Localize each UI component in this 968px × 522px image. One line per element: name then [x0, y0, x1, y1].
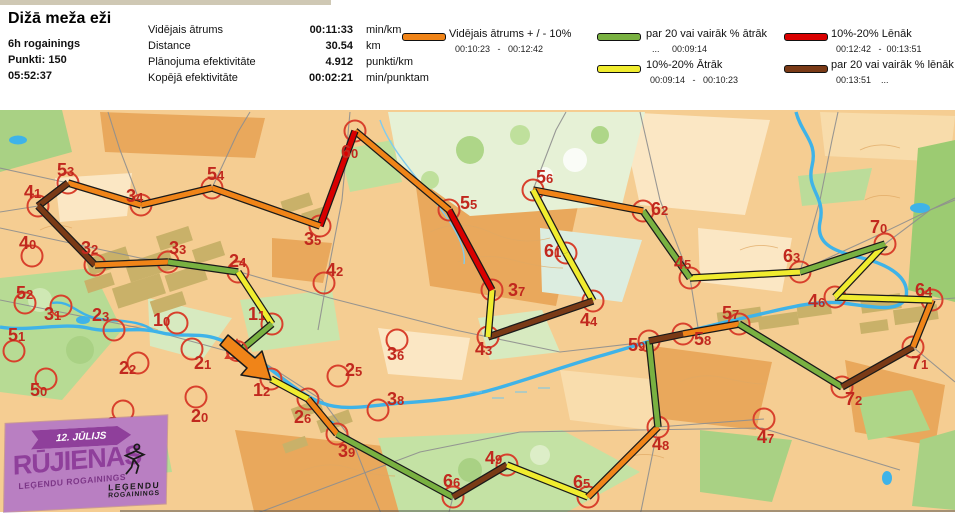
control-number-53: 53: [57, 164, 74, 178]
stat-unit: min/punktam: [366, 72, 429, 84]
legend-label: 10%-20% Ātrāk: [646, 59, 722, 71]
legend-range: 00:09:14 - 00:10:23: [650, 75, 738, 85]
control-number-56: 56: [536, 171, 553, 185]
control-number-10: 10: [153, 314, 170, 328]
control-number-55: 55: [460, 197, 477, 211]
legend-swatch-orange: [402, 33, 446, 41]
control-number-49: 49: [485, 452, 502, 466]
top-strip: [0, 0, 331, 5]
elapsed-time: 05:52:37: [8, 70, 52, 82]
control-number-71: 71: [911, 357, 928, 371]
stat-label: Kopējā efektivitāte: [148, 72, 238, 84]
control-number-41: 41: [24, 186, 41, 200]
control-number-44: 44: [580, 314, 597, 328]
stat-value: 00:02:21: [273, 72, 353, 84]
points-total: Punkti: 150: [8, 54, 67, 66]
control-number-72: 72: [845, 393, 862, 407]
stat-value: 4.912: [273, 56, 353, 68]
control-number-34: 34: [126, 190, 143, 204]
control-number-60: 60: [341, 146, 358, 160]
legend-label: par 20 vai vairāk % ātrāk: [646, 28, 767, 40]
legend-label: par 20 vai vairāk % lēnāk: [831, 59, 954, 71]
control-number-70: 70: [870, 221, 887, 235]
stat-label: Vidējais ātrums: [148, 24, 223, 36]
control-number-26: 26: [294, 411, 311, 425]
control-number-40: 40: [19, 237, 36, 251]
control-number-25: 25: [345, 364, 362, 378]
control-number-33: 33: [169, 242, 186, 256]
page-title: Dižā meža eži: [8, 10, 111, 28]
control-number-37: 37: [508, 284, 525, 298]
orienteer-runner-icon: [119, 442, 150, 476]
control-number-45: 45: [674, 257, 691, 271]
stat-value: 30.54: [273, 40, 353, 52]
stat-row: Vidējais ātrums 00:11:33 min/km: [148, 23, 398, 39]
legend-label: 10%-20% Lēnāk: [831, 28, 912, 40]
legend-swatch-brown: [784, 65, 828, 73]
stat-unit: km: [366, 40, 381, 52]
control-number-59: 59: [628, 339, 645, 353]
stat-label: Plānojuma efektivitāte: [148, 56, 256, 68]
control-number-52: 52: [16, 287, 33, 301]
stat-value: 00:11:33: [273, 24, 353, 36]
control-number-63: 63: [783, 250, 800, 264]
control-number-58: 58: [694, 333, 711, 347]
control-number-35: 35: [304, 233, 321, 247]
control-number-39: 39: [338, 445, 355, 459]
control-number-47: 47: [757, 431, 774, 445]
control-number-43: 43: [475, 343, 492, 357]
stat-row: Kopējā efektivitāte 00:02:21 min/punktam: [148, 71, 398, 87]
legend-range: 00:10:23 - 00:12:42: [455, 44, 543, 54]
control-number-48: 48: [652, 438, 669, 452]
stat-row: Distance 30.54 km: [148, 39, 398, 55]
control-number-51: 51: [8, 329, 25, 343]
control-number-61: 61: [544, 245, 561, 259]
control-number-66: 66: [443, 475, 460, 489]
control-number-12: 12: [253, 384, 270, 398]
stat-unit: min/km: [366, 24, 401, 36]
control-number-57: 57: [722, 307, 739, 321]
control-number-23: 23: [92, 309, 109, 323]
event-name: 6h rogainings: [8, 38, 80, 50]
control-number-32: 32: [81, 242, 98, 256]
control-number-54: 54: [207, 168, 224, 182]
legend-range: 00:12:42 - 00:13:51: [836, 44, 922, 54]
rogaining-results-page: 5341345435605556614443376245637046647172…: [0, 0, 968, 522]
logo-right-block: LEĢENDU ROGAININGS: [105, 442, 164, 500]
control-number-21: 21: [194, 357, 211, 371]
control-number-38: 38: [387, 393, 404, 407]
route-segment-avg: [95, 262, 168, 265]
control-number-50: 50: [30, 384, 47, 398]
control-number-36: 36: [387, 348, 404, 362]
control-number-24: 24: [229, 255, 246, 269]
control-number-11: 11: [248, 308, 265, 322]
control-number-64: 64: [915, 284, 932, 298]
control-number-65: 65: [573, 476, 590, 490]
legend-swatch-green: [597, 33, 641, 41]
event-logo: 12. JŪLIJS RŪJIENAS LEĢENDU ROGAININGS L…: [4, 415, 167, 512]
stats-table: Vidējais ātrums 00:11:33 min/km Distance…: [148, 23, 398, 87]
stat-row: Plānojuma efektivitāte 4.912 punkti/km: [148, 55, 398, 71]
legend-swatch-yellow: [597, 65, 641, 73]
control-number-20: 20: [191, 410, 208, 424]
legend-range: 00:13:51 ...: [836, 75, 889, 85]
control-number-46: 46: [808, 295, 825, 309]
legend-swatch-red: [784, 33, 828, 41]
control-number-62: 62: [651, 203, 668, 217]
legend-range: ... 00:09:14: [652, 44, 707, 54]
stat-unit: punkti/km: [366, 56, 413, 68]
control-number-22: 22: [119, 362, 136, 376]
control-number-42: 42: [326, 264, 343, 278]
legend-label: Vidējais ātrums + / - 10%: [449, 28, 571, 40]
control-number-31: 31: [44, 308, 61, 322]
stat-label: Distance: [148, 40, 191, 52]
